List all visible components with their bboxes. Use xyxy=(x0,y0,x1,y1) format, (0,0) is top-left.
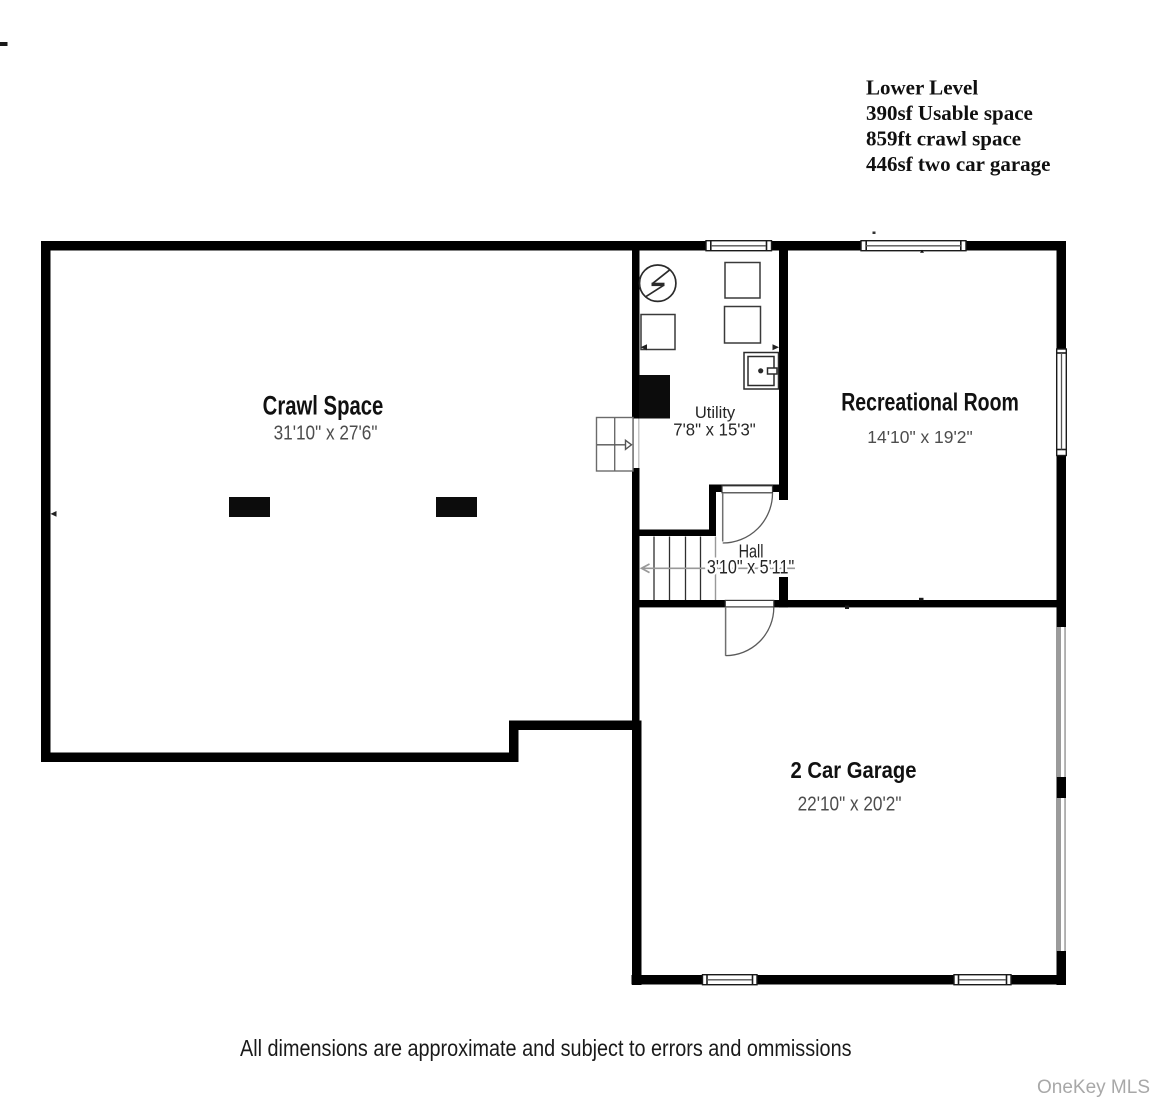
svg-text:OneKey MLS: OneKey MLS xyxy=(1037,1077,1150,1098)
svg-text:7'8" x 15'3": 7'8" x 15'3" xyxy=(673,419,755,440)
svg-text:390sf Usable space: 390sf Usable space xyxy=(866,101,1033,125)
svg-text:All dimensions are approximate: All dimensions are approximate and subje… xyxy=(240,1036,852,1062)
svg-text:Lower Level: Lower Level xyxy=(866,76,978,100)
svg-text:22'10" x 20'2": 22'10" x 20'2" xyxy=(798,792,902,815)
svg-text:3'10" x 5'11": 3'10" x 5'11" xyxy=(707,556,794,578)
svg-text:2 Car Garage: 2 Car Garage xyxy=(791,757,917,784)
svg-text:31'10" x 27'6": 31'10" x 27'6" xyxy=(274,421,378,444)
svg-text:446sf two car garage: 446sf two car garage xyxy=(866,152,1050,176)
svg-text:Crawl Space: Crawl Space xyxy=(263,392,384,421)
svg-text:859ft crawl space: 859ft crawl space xyxy=(866,127,1021,151)
svg-text:Recreational Room: Recreational Room xyxy=(841,388,1019,416)
svg-text:14'10" x 19'2": 14'10" x 19'2" xyxy=(867,427,972,447)
